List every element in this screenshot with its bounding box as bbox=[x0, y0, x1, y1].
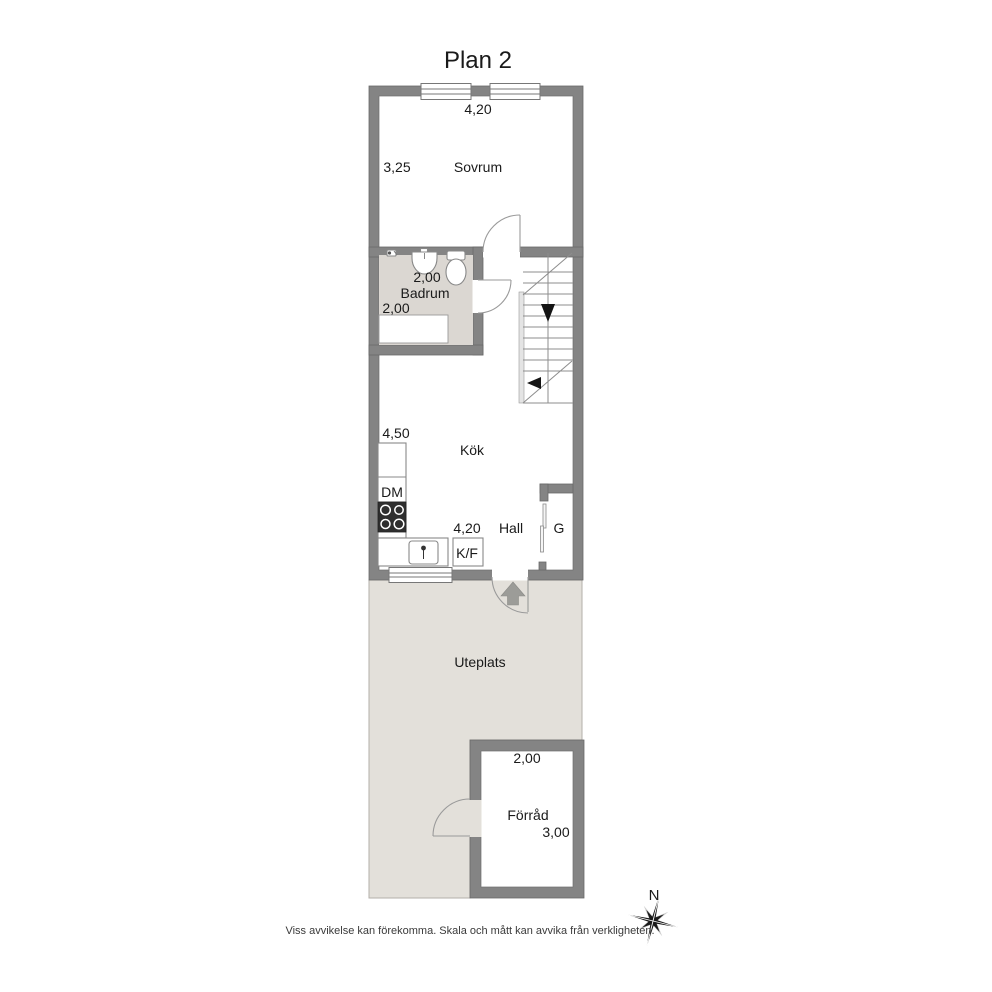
window-kok bbox=[389, 568, 452, 583]
dim-sovrum-depth: 3,25 bbox=[383, 159, 410, 175]
room-label-uteplats: Uteplats bbox=[454, 654, 505, 670]
dim-badrum-width: 2,00 bbox=[413, 269, 440, 285]
opening-entry bbox=[492, 570, 528, 581]
toilet-icon bbox=[446, 251, 466, 285]
wall-g-closet-stub bbox=[540, 484, 548, 501]
dim-badrum-depth: 2,00 bbox=[382, 300, 409, 316]
label-fridge-freezer: K/F bbox=[456, 545, 478, 561]
dim-sovrum-width: 4,20 bbox=[464, 101, 491, 117]
label-wardrobe: G bbox=[554, 520, 565, 536]
room-label-kok: Kök bbox=[460, 442, 485, 458]
wall-badrum-bottom bbox=[369, 345, 483, 355]
label-dishwasher: DM bbox=[381, 484, 403, 500]
opening-badrum bbox=[473, 280, 484, 313]
room-label-sovrum: Sovrum bbox=[454, 159, 502, 175]
dim-kok-width: 4,20 bbox=[453, 520, 480, 536]
faucet-icon bbox=[387, 250, 397, 256]
opening-sovrum bbox=[483, 247, 520, 258]
room-label-forrad: Förråd bbox=[507, 807, 548, 823]
dim-forrad-depth: 3,00 bbox=[542, 824, 569, 840]
floor-plan-page: Plan 2 bbox=[0, 0, 992, 992]
window-sovrum-right bbox=[490, 84, 540, 100]
room-label-badrum: Badrum bbox=[400, 285, 449, 301]
wall-sovrum-right bbox=[520, 247, 583, 257]
wall-g-closet-bottom-stub bbox=[539, 562, 546, 570]
window-sovrum-left bbox=[421, 84, 471, 100]
floor-plan-svg: Plan 2 bbox=[0, 0, 992, 992]
dim-forrad-width: 2,00 bbox=[513, 750, 540, 766]
compass-north-label: N bbox=[649, 887, 660, 904]
shower-icon bbox=[379, 315, 448, 343]
opening-forrad bbox=[470, 800, 482, 837]
disclaimer-text: Viss avvikelse kan förekomma. Skala och … bbox=[285, 925, 654, 937]
compass-rose: N bbox=[627, 887, 679, 947]
kitchen-sink-icon bbox=[409, 541, 438, 564]
stair-handrail bbox=[519, 292, 524, 403]
room-label-hall: Hall bbox=[499, 520, 523, 536]
stove-icon bbox=[378, 502, 406, 532]
page-title: Plan 2 bbox=[444, 47, 512, 74]
dim-kok-depth: 4,50 bbox=[382, 425, 409, 441]
